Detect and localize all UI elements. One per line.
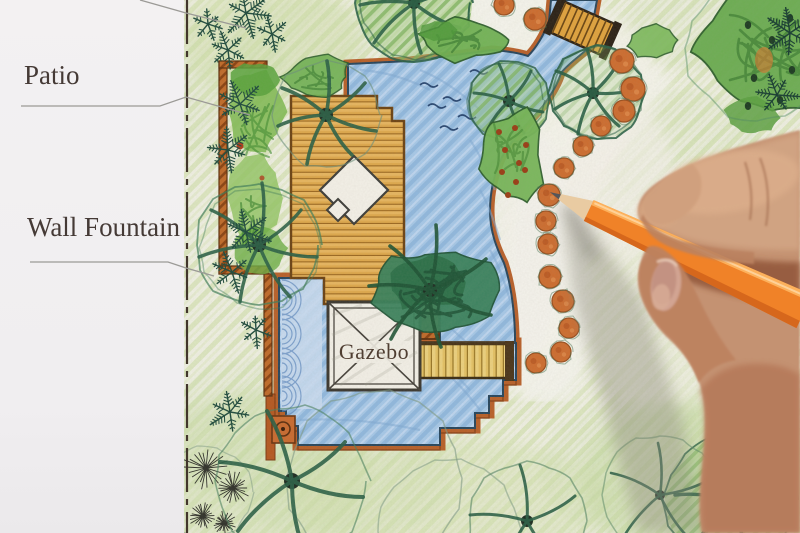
svg-text:Wall Fountain: Wall Fountain bbox=[27, 212, 181, 242]
svg-text:Patio: Patio bbox=[24, 60, 80, 90]
